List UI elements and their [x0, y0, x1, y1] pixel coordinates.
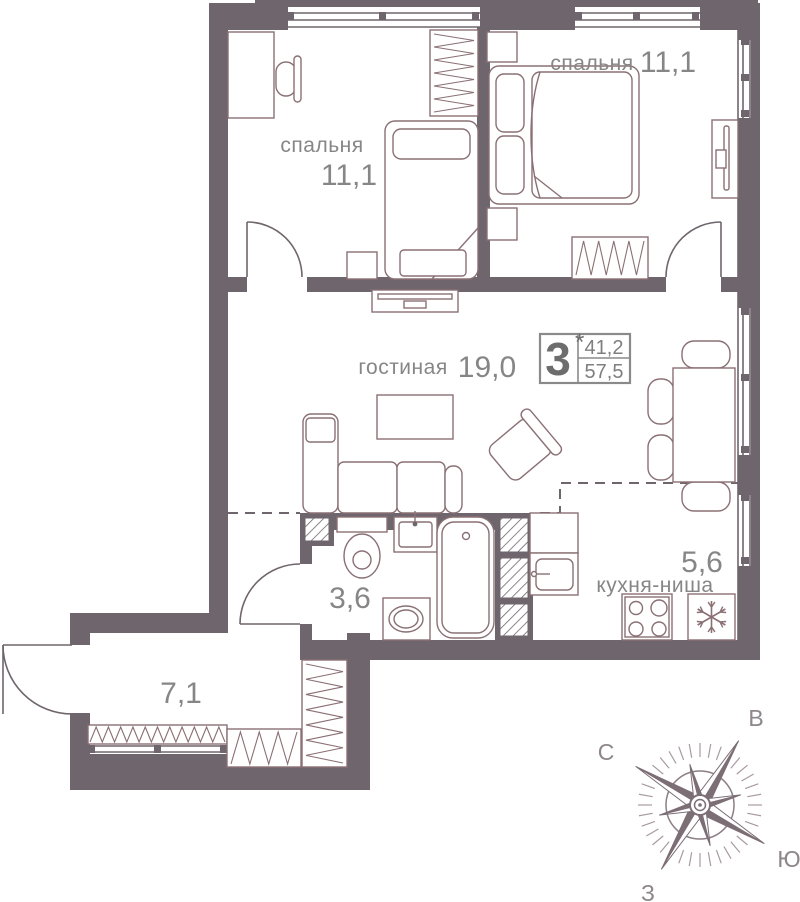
- wall-hall-bottom: [70, 754, 227, 790]
- bedroom-left-area: 11,1: [321, 159, 377, 192]
- desk-icon: [228, 32, 274, 118]
- badge-area-living: 41,2: [585, 337, 624, 359]
- compass-north-label: С: [598, 739, 615, 765]
- badge-rooms-count: 3: [545, 333, 571, 385]
- nightstand-icon: [347, 252, 377, 279]
- wall-tv-icon: [712, 120, 738, 198]
- door-bedroom-right: [666, 222, 721, 277]
- toilet-icon: [337, 517, 387, 578]
- double-bed-icon: [489, 66, 639, 204]
- bedroom-right-area: 11,1: [640, 46, 696, 79]
- dining-chair-icon: [682, 482, 730, 511]
- door-bathroom: [240, 564, 300, 624]
- armchair-icon: [482, 407, 563, 488]
- kitchen-name: кухня-ниша: [596, 574, 713, 597]
- wall-top-pier: [480, 3, 575, 30]
- badge-star: *: [575, 329, 584, 356]
- living-name: гостиная: [358, 356, 447, 379]
- bedside-table-icon: [487, 32, 517, 62]
- apartment-badge: 3 * 41,2 57,5: [540, 329, 630, 385]
- window-fitting: [287, 12, 294, 20]
- compass-south-label: Ю: [777, 846, 800, 872]
- bedside-table-icon: [487, 208, 517, 240]
- badge-area-total: 57,5: [585, 361, 624, 383]
- single-bed-icon: [385, 121, 478, 279]
- bedroom-right-name: спальня: [550, 52, 633, 75]
- living-area: 19,0: [458, 351, 516, 384]
- fridge-icon: [688, 594, 735, 640]
- stove-icon: [622, 594, 672, 640]
- vent-hatch: [305, 518, 329, 541]
- dining-table-icon: [648, 341, 735, 511]
- chair-icon: [276, 56, 301, 102]
- wall-hall-top: [70, 613, 210, 633]
- dining-chair-icon: [682, 341, 730, 368]
- wall-hall-right: [347, 633, 370, 790]
- door-bedroom-left: [247, 222, 302, 277]
- bathroom-area: 3,6: [329, 582, 371, 615]
- compass-rose: В С Ю З: [597, 702, 800, 902]
- bedroom-left-name: спальня: [280, 134, 363, 157]
- compass-west-label: З: [641, 880, 655, 902]
- bathtub-icon: [437, 517, 494, 638]
- dining-chair-icon: [648, 435, 674, 480]
- compass-east-label: В: [748, 705, 763, 731]
- wall-mid: [209, 277, 247, 292]
- dining-chair-icon: [648, 379, 674, 424]
- wall-right-outer: [751, 3, 760, 660]
- bathroom-sink-icon: [394, 511, 437, 552]
- door-entrance: [3, 645, 72, 714]
- washing-machine-icon: [383, 598, 430, 640]
- wall-top-corner-left: [209, 3, 288, 30]
- hall-area: 7,1: [160, 677, 202, 710]
- wall-left: [209, 3, 228, 633]
- kitchen-counter-icon: [530, 513, 578, 595]
- coffee-table-icon: [377, 395, 453, 439]
- tv-stand-icon: [372, 290, 458, 312]
- apartment-floorplan: спальня 11,1 спальня 11,1 гостиная 19,0 …: [0, 0, 800, 902]
